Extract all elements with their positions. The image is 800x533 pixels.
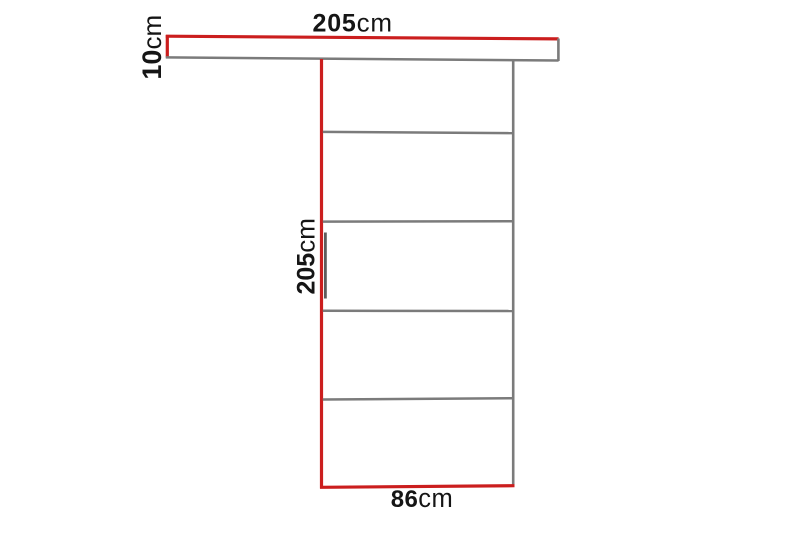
svg-text:205cm: 205cm (313, 8, 393, 38)
svg-text:10cm: 10cm (137, 15, 167, 80)
svg-text:205cm: 205cm (291, 218, 321, 294)
svg-text:86cm: 86cm (391, 485, 453, 513)
